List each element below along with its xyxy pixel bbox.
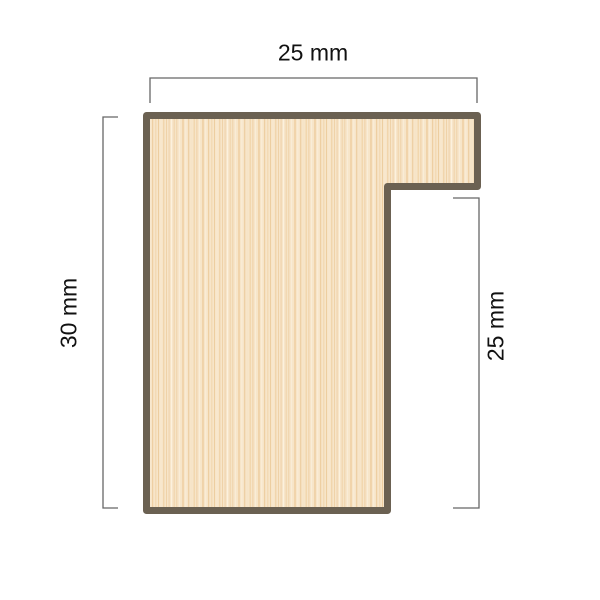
- dimension-line-left: [103, 117, 118, 508]
- diagram-canvas: 25 mm 30 mm 25 mm: [0, 0, 600, 600]
- moulding-profile-diagram: [0, 0, 600, 600]
- dimension-line-top: [150, 78, 477, 103]
- dimension-line-right: [453, 198, 479, 508]
- dimension-label-right-rebate-height: 25 mm: [485, 291, 508, 361]
- dimension-label-top-width: 25 mm: [278, 42, 348, 65]
- moulding-profile-shape: [147, 116, 478, 511]
- dimension-label-left-height: 30 mm: [58, 278, 81, 348]
